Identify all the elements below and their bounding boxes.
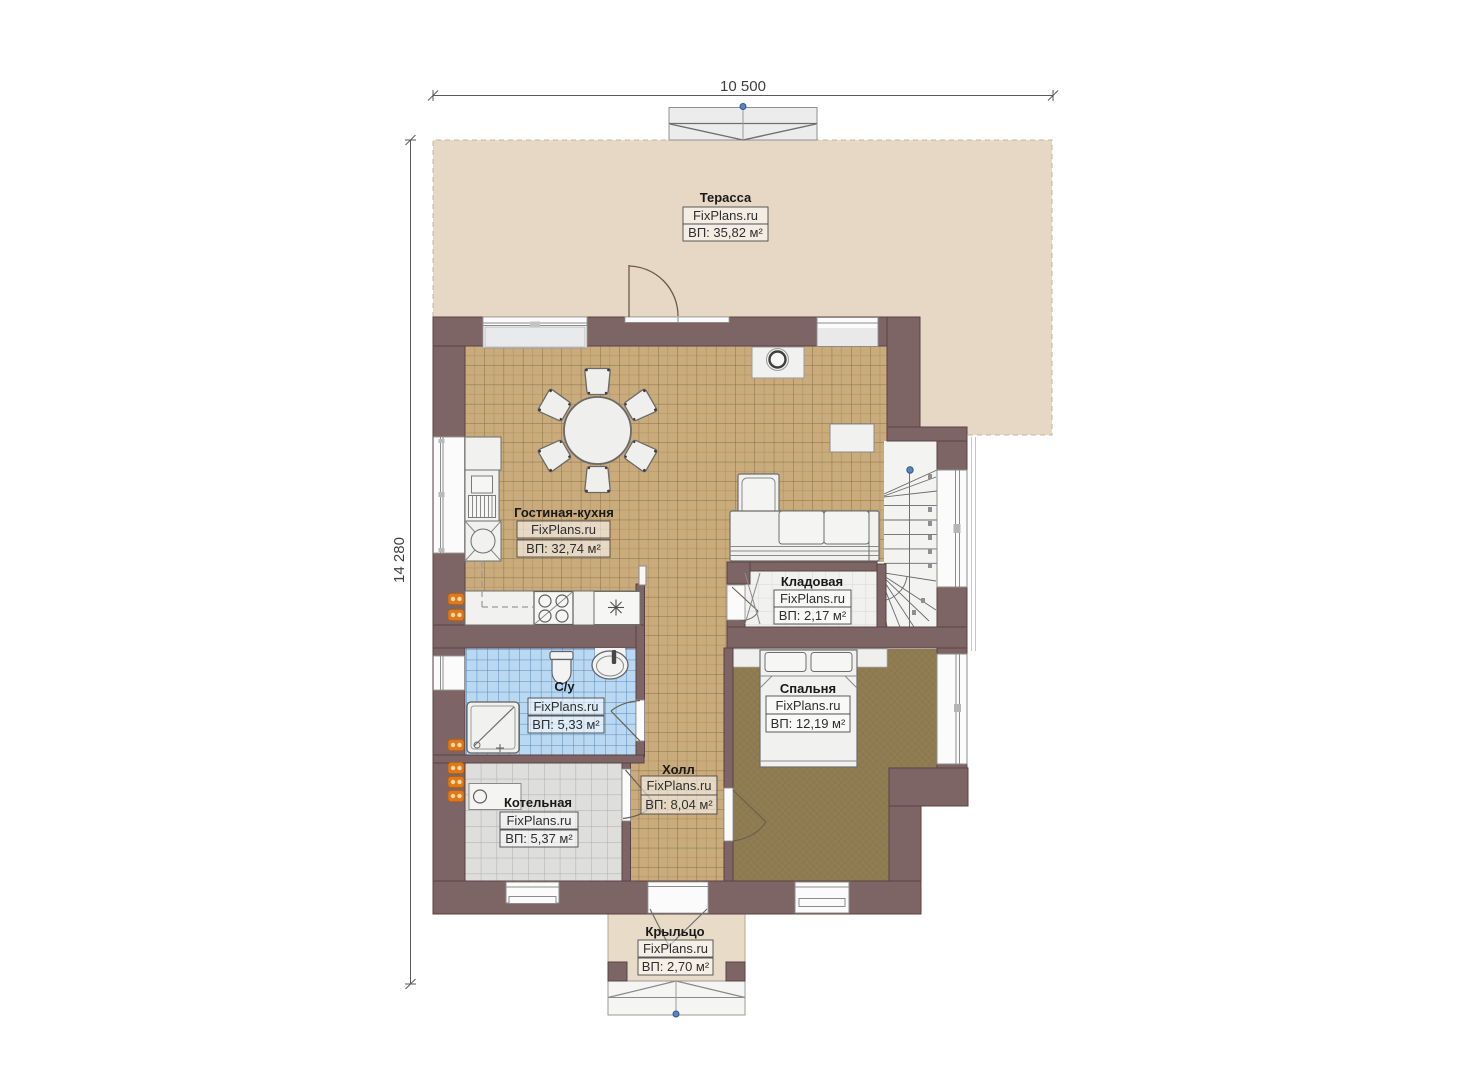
svg-text:Крыльцо: Крыльцо — [645, 924, 704, 939]
svg-text:ВП: 5,33 м²: ВП: 5,33 м² — [532, 717, 600, 732]
svg-text:FixPlans.ru: FixPlans.ru — [780, 591, 845, 606]
svg-text:ВП: 5,37 м²: ВП: 5,37 м² — [505, 831, 573, 846]
svg-text:ВП: 2,70 м²: ВП: 2,70 м² — [642, 959, 710, 974]
svg-text:FixPlans.ru: FixPlans.ru — [775, 698, 840, 713]
svg-text:Котельная: Котельная — [504, 795, 572, 810]
svg-text:FixPlans.ru: FixPlans.ru — [693, 208, 758, 223]
svg-text:FixPlans.ru: FixPlans.ru — [643, 941, 708, 956]
svg-text:С/у: С/у — [554, 679, 575, 694]
svg-text:Терасса: Терасса — [700, 190, 752, 205]
svg-text:ВП: 12,19 м²: ВП: 12,19 м² — [771, 716, 846, 731]
svg-text:10 500: 10 500 — [720, 78, 766, 95]
svg-text:FixPlans.ru: FixPlans.ru — [531, 522, 596, 537]
svg-text:14 280: 14 280 — [391, 537, 408, 583]
svg-text:Кладовая: Кладовая — [781, 574, 843, 589]
svg-text:FixPlans.ru: FixPlans.ru — [646, 778, 711, 793]
svg-text:FixPlans.ru: FixPlans.ru — [506, 813, 571, 828]
svg-text:Спальня: Спальня — [780, 681, 836, 696]
svg-text:FixPlans.ru: FixPlans.ru — [533, 699, 598, 714]
svg-text:ВП: 8,04 м²: ВП: 8,04 м² — [645, 797, 713, 812]
svg-text:ВП: 32,74 м²: ВП: 32,74 м² — [526, 541, 601, 556]
svg-text:Гостиная-кухня: Гостиная-кухня — [514, 505, 614, 520]
svg-text:ВП: 35,82 м²: ВП: 35,82 м² — [688, 225, 763, 240]
svg-text:Холл: Холл — [662, 762, 695, 777]
svg-text:ВП: 2,17 м²: ВП: 2,17 м² — [779, 608, 847, 623]
